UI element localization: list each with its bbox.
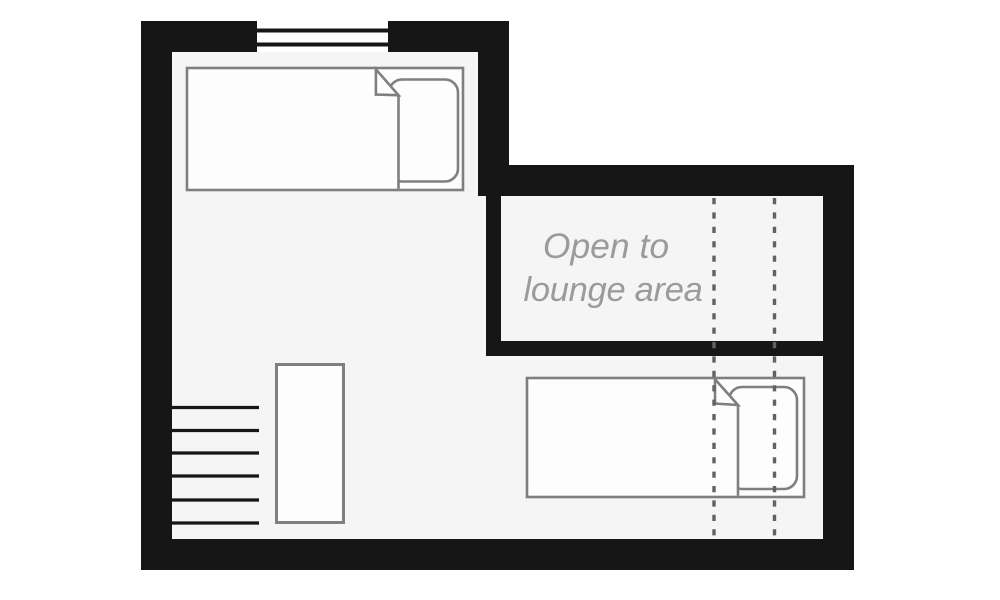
svg-text:lounge area: lounge area — [524, 271, 703, 309]
svg-text:Open to: Open to — [543, 226, 669, 266]
